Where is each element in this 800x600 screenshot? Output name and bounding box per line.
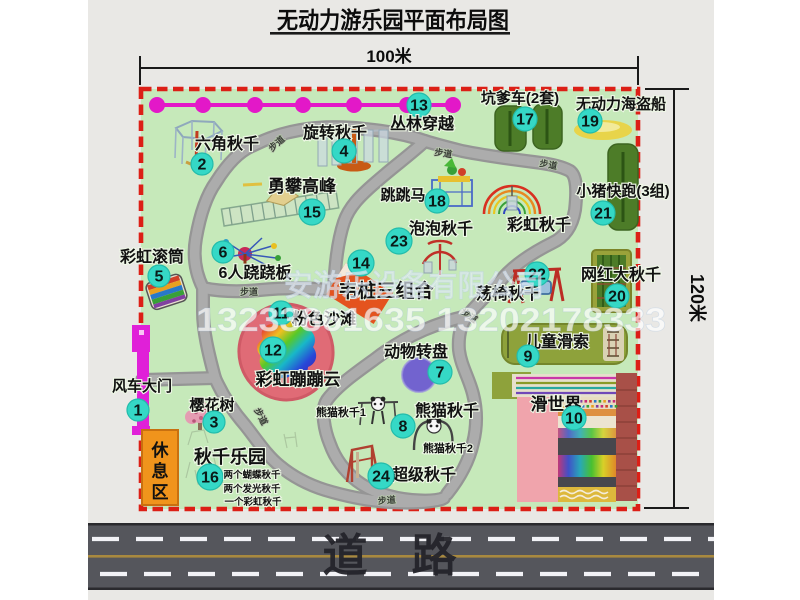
svg-text:安游乐设备有限公司: 安游乐设备有限公司 xyxy=(284,269,544,303)
svg-text:熊猫秋千2: 熊猫秋千2 xyxy=(423,441,473,455)
svg-text:步道: 步道 xyxy=(377,494,396,506)
svg-text:10: 10 xyxy=(565,410,583,427)
svg-text:5: 5 xyxy=(155,268,164,285)
svg-text:丛林穿越: 丛林穿越 xyxy=(390,114,455,133)
svg-text:120米: 120米 xyxy=(687,274,708,323)
svg-text:6: 6 xyxy=(219,244,228,261)
svg-text:秋千乐园: 秋千乐园 xyxy=(194,446,266,467)
svg-text:1: 1 xyxy=(134,402,143,419)
svg-text:无动力游乐园平面布局图: 无动力游乐园平面布局图 xyxy=(277,7,509,33)
svg-text:六角秋千: 六角秋千 xyxy=(195,134,259,153)
svg-text:21: 21 xyxy=(594,205,612,222)
svg-text:网红大秋千: 网红大秋千 xyxy=(581,265,661,284)
svg-text:息: 息 xyxy=(152,461,169,481)
svg-text:区: 区 xyxy=(152,483,169,502)
svg-text:熊猫秋千1: 熊猫秋千1 xyxy=(316,405,366,419)
svg-text:13: 13 xyxy=(410,97,428,114)
svg-text:8: 8 xyxy=(399,418,408,435)
svg-text:彩虹蹦蹦云: 彩虹蹦蹦云 xyxy=(255,369,341,389)
svg-text:3: 3 xyxy=(210,414,219,431)
svg-text:4: 4 xyxy=(340,143,349,160)
svg-text:动物转盘: 动物转盘 xyxy=(384,342,448,361)
svg-text:6人跷跷板: 6人跷跷板 xyxy=(219,263,293,282)
svg-text:小猪快跑(3组): 小猪快跑(3组) xyxy=(576,182,669,200)
svg-text:泡泡秋千: 泡泡秋千 xyxy=(409,219,473,238)
svg-text:熊猫秋千: 熊猫秋千 xyxy=(415,401,479,420)
svg-text:两个蝴蝶秋千: 两个蝴蝶秋千 xyxy=(223,469,281,481)
svg-text:23: 23 xyxy=(390,233,408,250)
svg-text:一个彩虹秋千: 一个彩虹秋千 xyxy=(224,496,282,508)
svg-text:休: 休 xyxy=(151,440,170,460)
svg-text:9: 9 xyxy=(524,348,533,365)
svg-text:19: 19 xyxy=(581,113,599,130)
svg-text:风车大门: 风车大门 xyxy=(112,377,172,395)
svg-text:18: 18 xyxy=(428,193,446,210)
svg-text:旋转秋千: 旋转秋千 xyxy=(302,123,367,142)
svg-text:100米: 100米 xyxy=(366,46,412,66)
svg-text:17: 17 xyxy=(516,111,534,128)
svg-text:24: 24 xyxy=(372,468,390,485)
svg-text:彩虹秋千: 彩虹秋千 xyxy=(506,215,571,234)
svg-text:16: 16 xyxy=(201,469,219,486)
svg-text:两个发光秋千: 两个发光秋千 xyxy=(223,483,281,495)
svg-text:步道: 步道 xyxy=(240,286,258,297)
svg-text:15: 15 xyxy=(303,204,321,221)
svg-text:勇攀高峰: 勇攀高峰 xyxy=(268,176,337,196)
svg-text:路: 路 xyxy=(411,530,457,581)
svg-text:跳跳马: 跳跳马 xyxy=(380,186,425,204)
svg-text:7: 7 xyxy=(436,364,445,381)
svg-text:超级秋千: 超级秋千 xyxy=(391,465,456,484)
svg-text:2: 2 xyxy=(198,156,207,173)
svg-text:12: 12 xyxy=(264,342,282,359)
svg-text:13233861635 13202178333: 13233861635 13202178333 xyxy=(196,301,666,338)
svg-text:彩虹滚筒: 彩虹滚筒 xyxy=(119,247,184,266)
svg-text:道: 道 xyxy=(322,530,367,581)
svg-text:坑爹车(2套): 坑爹车(2套) xyxy=(481,89,559,107)
